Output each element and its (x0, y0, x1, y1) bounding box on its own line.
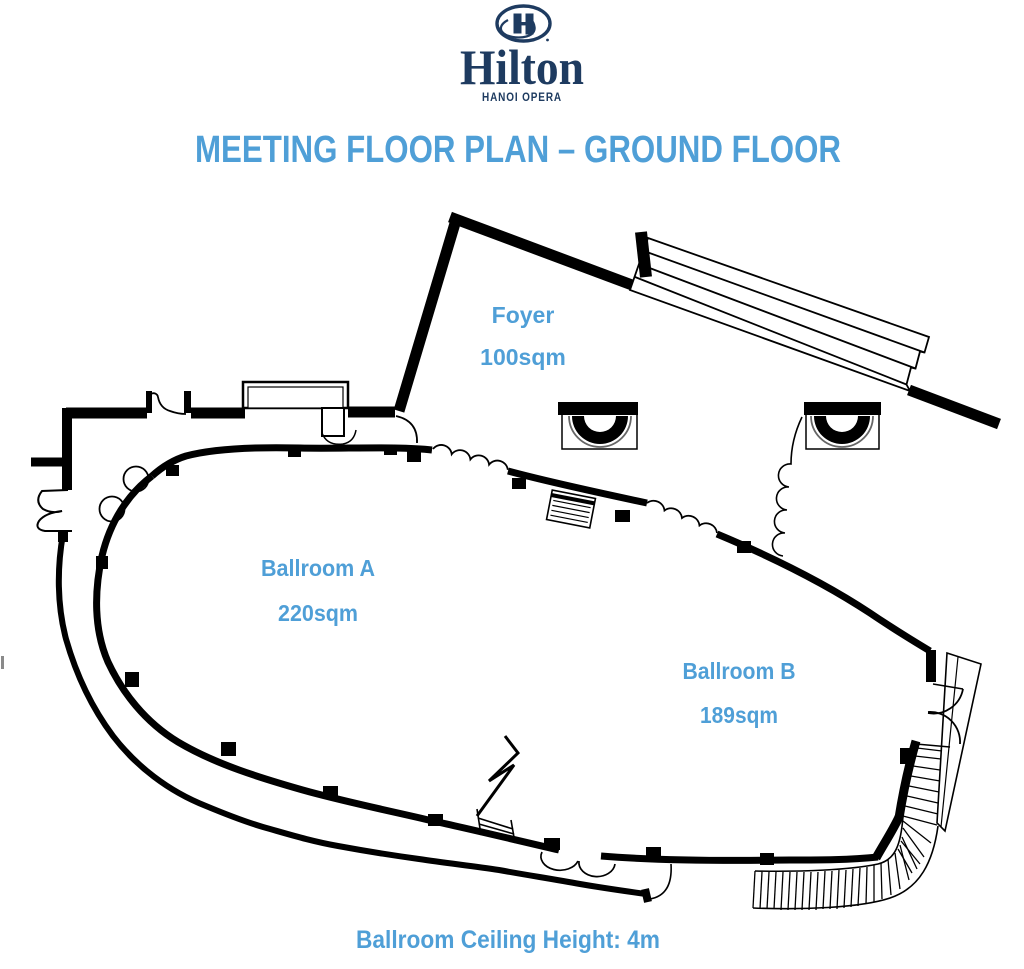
svg-text:100sqm: 100sqm (480, 344, 566, 370)
svg-text:Hilton: Hilton (460, 39, 584, 95)
svg-text:189sqm: 189sqm (700, 702, 778, 728)
svg-text:220sqm: 220sqm (278, 600, 358, 626)
svg-text:Ballroom A: Ballroom A (261, 555, 375, 581)
svg-text:Ballroom Ceiling Height: 4m: Ballroom Ceiling Height: 4m (356, 926, 660, 954)
svg-text:MEETING FLOOR PLAN – GROUND FL: MEETING FLOOR PLAN – GROUND FLOOR (195, 129, 841, 171)
svg-text:HANOI OPERA: HANOI OPERA (482, 92, 562, 104)
svg-text:Ballroom B: Ballroom B (683, 658, 796, 684)
svg-text:Foyer: Foyer (492, 302, 555, 328)
